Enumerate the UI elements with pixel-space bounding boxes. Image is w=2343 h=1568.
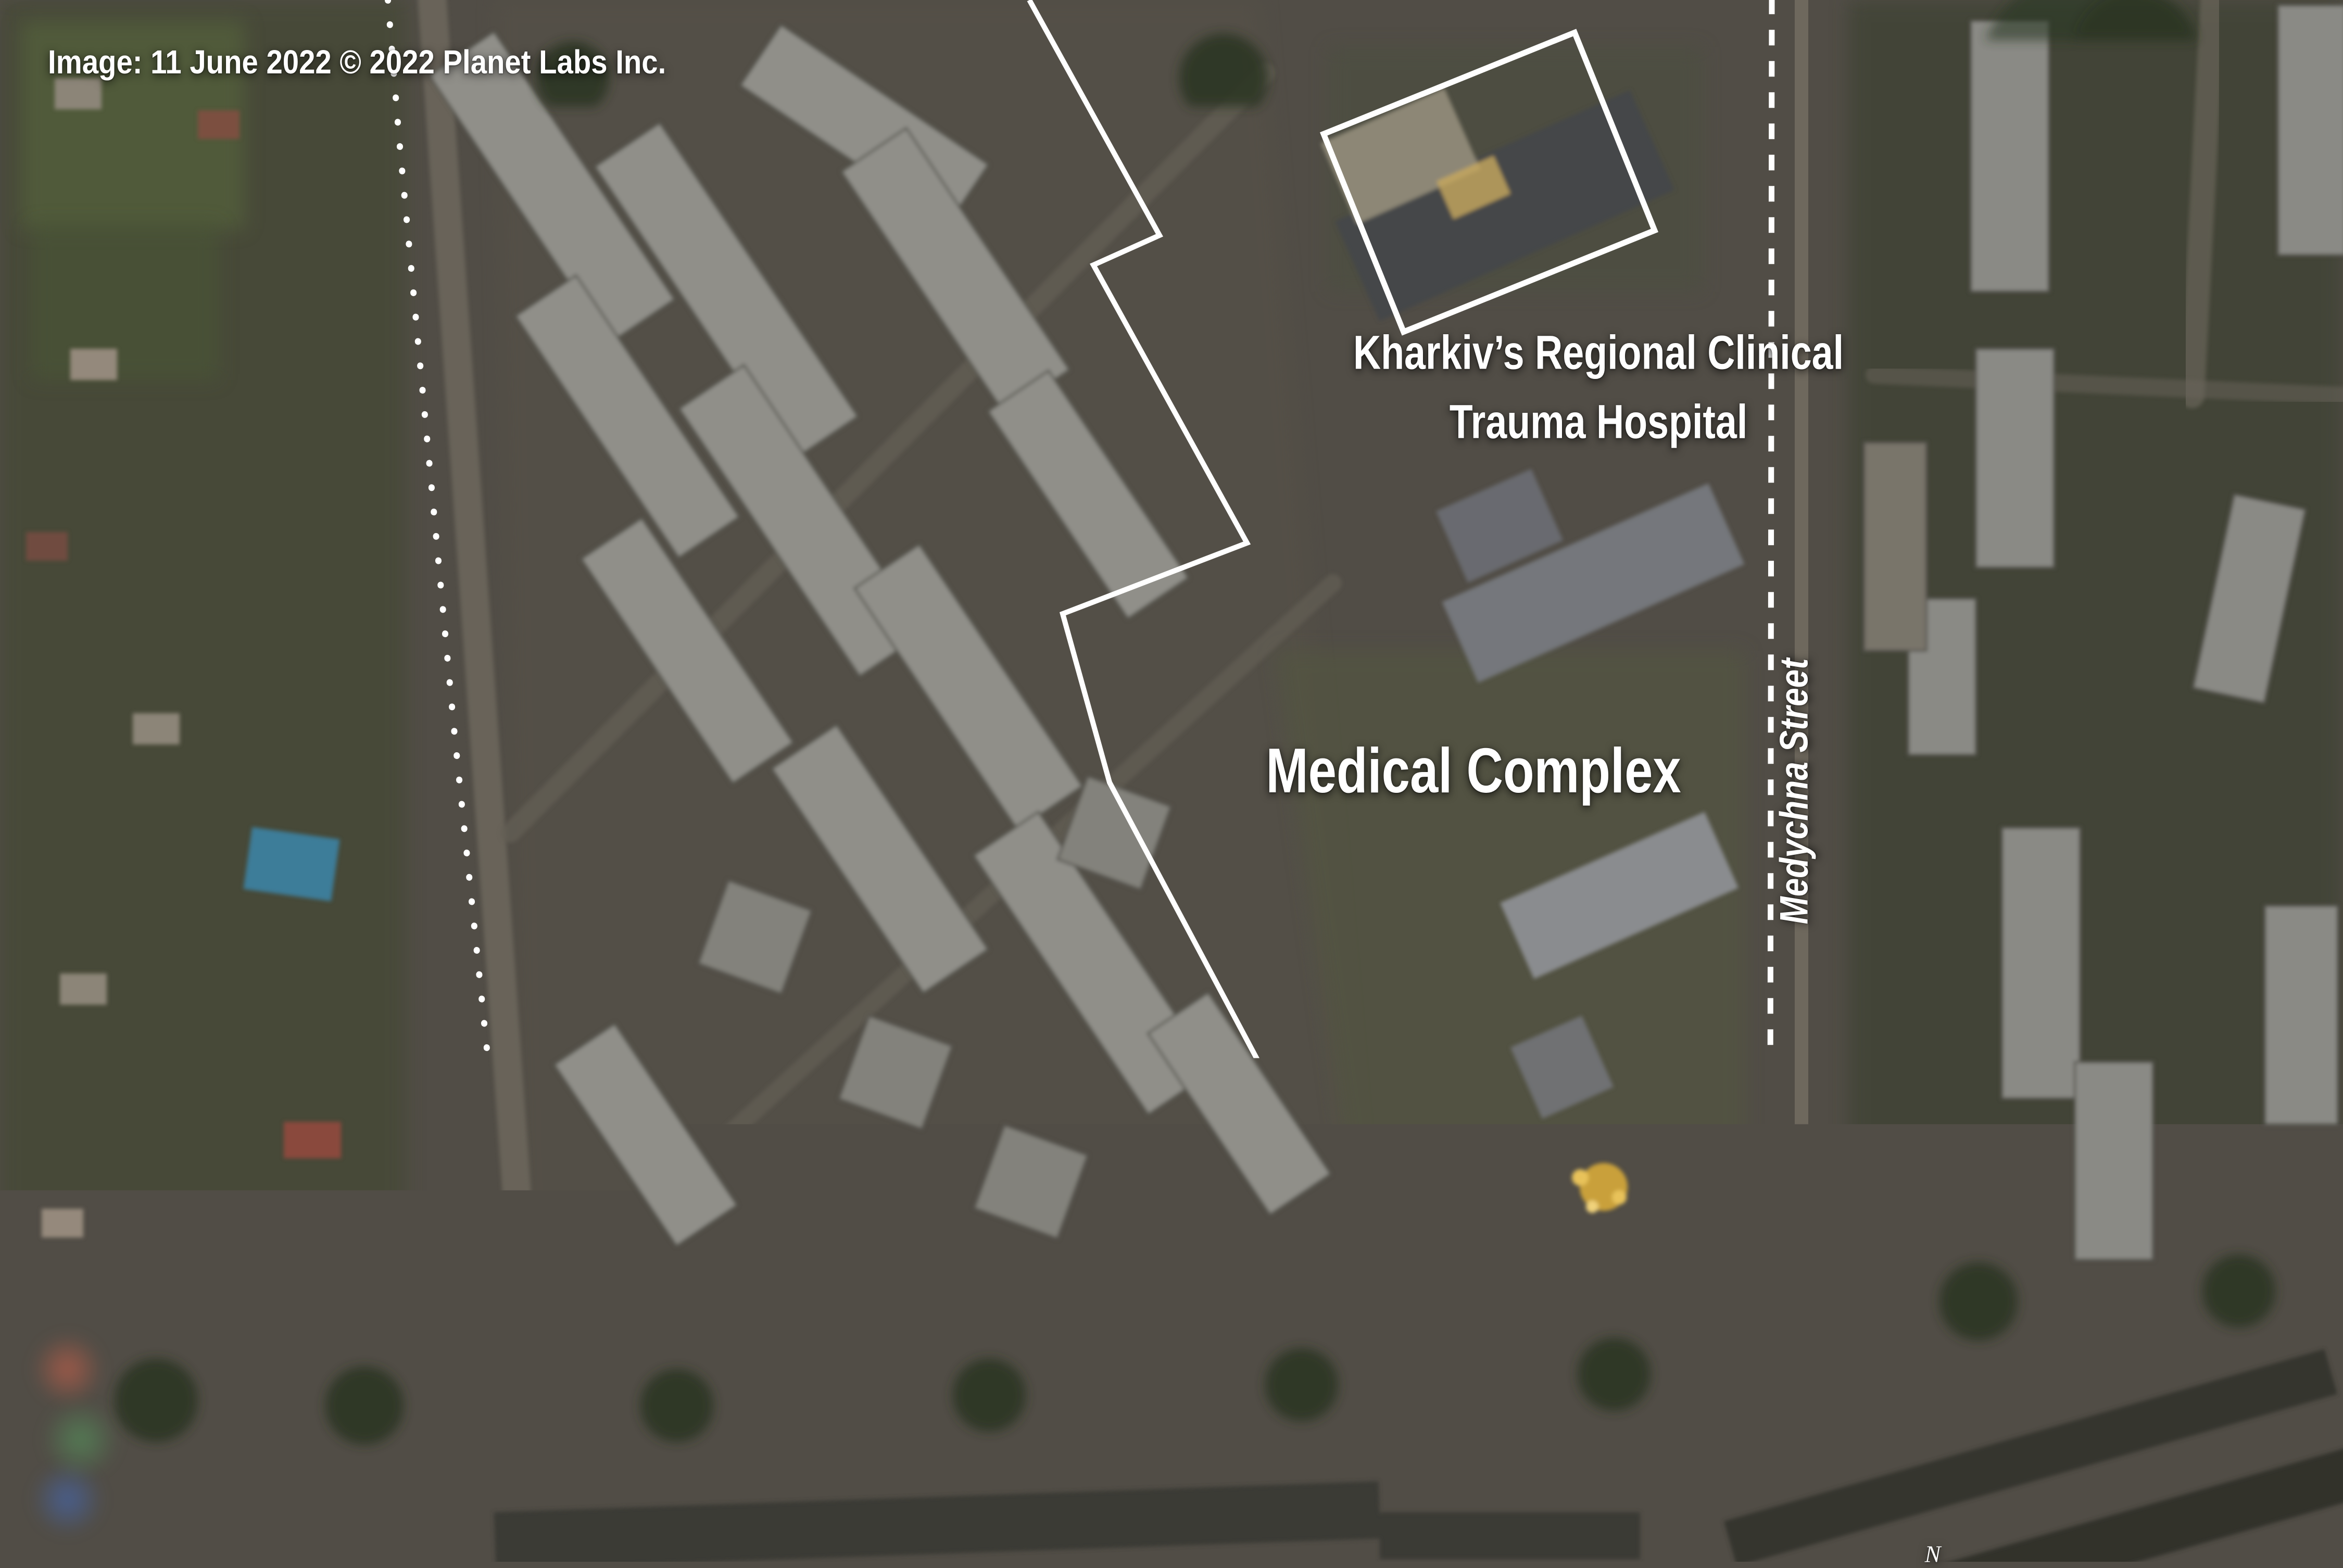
saltivske-highway-label: Saltivske Highway xyxy=(962,1331,1246,1379)
earthen-berm-box-1 xyxy=(264,1364,418,1529)
hospital-label: Kharkiv’s Regional Clinical Trauma Hospi… xyxy=(1353,319,1844,458)
scale-bar-unit: Meters xyxy=(2251,1512,2337,1548)
medical-complex-label: Medical Complex xyxy=(1266,734,1681,807)
roadblocks-label: Roadblocks xyxy=(1410,1278,1628,1332)
hospital-label-line2: Trauma Hospital xyxy=(1353,388,1844,457)
boundary-dotted-bottom-right xyxy=(514,0,1772,1245)
earthen-berm-arrowhead-2 xyxy=(723,1280,773,1344)
north-arrow xyxy=(1924,1478,1956,1536)
hospital-label-line1: Kharkiv’s Regional Clinical xyxy=(1353,319,1844,388)
north-label: N xyxy=(1925,1540,1941,1568)
earthen-berm-box-2 xyxy=(672,1364,826,1529)
roadblocks-arrowhead xyxy=(1821,1282,1872,1330)
boundary-dotted-left xyxy=(388,0,514,1233)
scale-bar xyxy=(2013,1521,2243,1535)
medychna-street-label: Medychna Street xyxy=(1772,659,1817,925)
annotated-satellite-map: { "image_meta": { "credit": "Image: 11 J… xyxy=(0,0,2343,1562)
scale-bar-distance: 70 xyxy=(2115,1485,2141,1519)
hospital-highlight-box xyxy=(1324,33,1655,332)
earthen-berm-arrowhead-1 xyxy=(321,1280,371,1344)
medical-complex-boundary-line xyxy=(1029,0,1349,1231)
image-credit: Image: 11 June 2022 © 2022 Planet Labs I… xyxy=(48,43,666,81)
annotation-overlay xyxy=(0,0,2343,1562)
earthen-berms-label: Earthen berms xyxy=(425,1094,682,1147)
